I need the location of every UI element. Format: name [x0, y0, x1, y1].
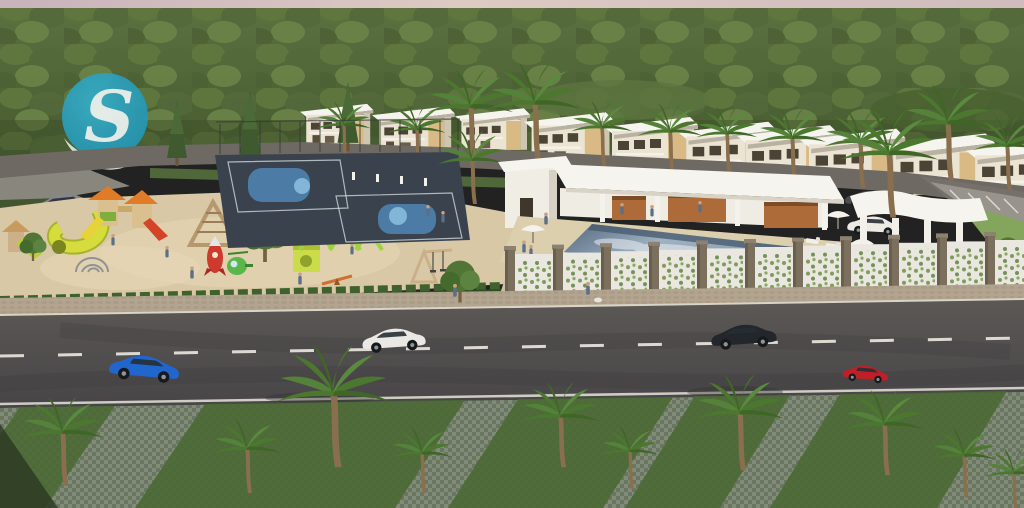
court-surface	[215, 152, 470, 248]
court-player	[426, 205, 430, 216]
logo-letter: S	[84, 75, 135, 158]
court-player	[441, 211, 445, 222]
main-road	[0, 300, 1024, 408]
pedestrian	[453, 284, 457, 297]
asphalt	[0, 300, 1024, 408]
aerial-rendering: S	[0, 0, 1024, 508]
umbrella	[826, 211, 850, 229]
playhouse	[293, 245, 320, 272]
parked-white-car	[847, 215, 900, 236]
scene-canvas: S	[0, 0, 1024, 508]
